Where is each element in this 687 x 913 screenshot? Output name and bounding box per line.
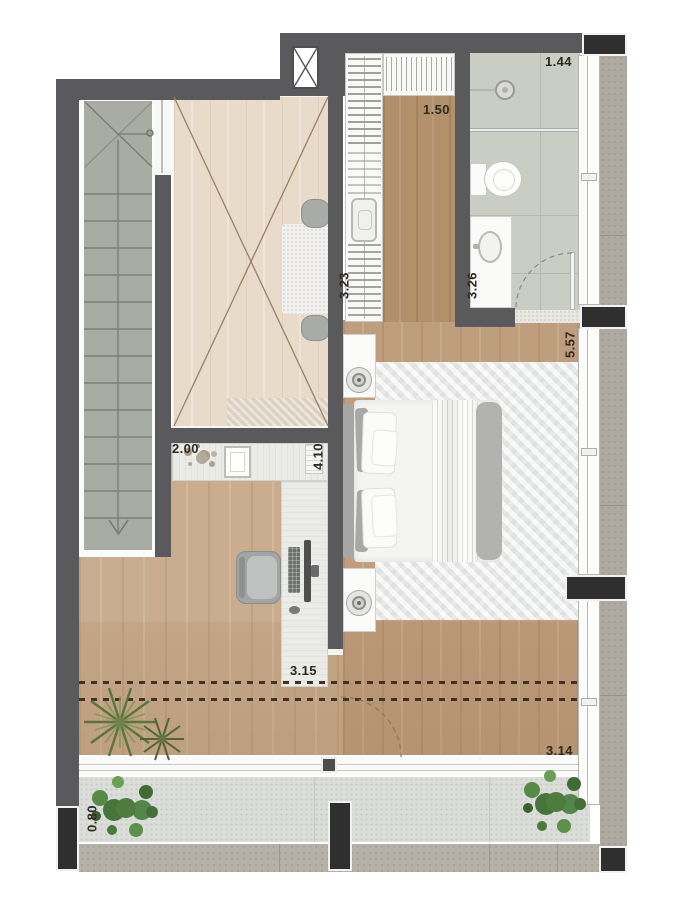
shower-arm [470, 89, 497, 91]
dim-closet-length: 3.23 [336, 266, 352, 306]
dim-balcony-depth: 0.80 [84, 792, 100, 846]
window-mullion [581, 173, 597, 181]
ledge-seam-b [489, 844, 490, 872]
wall-middle-vertical [328, 95, 343, 649]
floor-plan: 1.44 1.50 3.23 3.26 5.57 2.00 4.10 3.15 … [0, 0, 687, 913]
desk-picture-frame [224, 446, 251, 478]
window-bathroom [578, 55, 600, 305]
hanging-clothes-icon [386, 57, 452, 91]
monitor-stand [311, 565, 319, 577]
table-lamp-icon-bottom [346, 590, 372, 616]
ledge-seam-a [279, 844, 280, 872]
void-chair-below-1 [301, 199, 330, 228]
folded-items-inner [358, 210, 372, 230]
window-terrace [578, 598, 600, 805]
void-chair-below-2 [301, 315, 330, 341]
monitor-icon [304, 540, 311, 602]
clothes-rail-3 [348, 244, 381, 319]
dim-bedroom-length: 5.57 [562, 324, 578, 366]
lamp-dot [357, 378, 361, 382]
mouse-icon [289, 606, 300, 614]
bed-foot-roll [476, 402, 502, 560]
column-bottom-center [328, 801, 352, 871]
office-chair [236, 551, 281, 604]
wall-end-cap [328, 649, 343, 655]
balcony-plant-left [116, 798, 136, 818]
sink-icon [478, 231, 502, 263]
cushion-2 [371, 494, 398, 537]
keyboard-icon [288, 547, 300, 593]
window-bedroom [578, 328, 600, 575]
stair-glass-rail [155, 95, 171, 175]
wardrobe-top [383, 53, 455, 96]
ledge-right-seam-1 [600, 235, 627, 236]
table-lamp-icon-top [346, 367, 372, 393]
balcony-seam-2 [489, 777, 490, 842]
shower-head-dot [502, 87, 508, 93]
column-bottom-right [599, 846, 627, 873]
wall-stair-right [155, 175, 171, 557]
shaft-box [292, 46, 319, 89]
tile-joint-v [540, 53, 541, 320]
wall-top-left [56, 79, 280, 100]
balcony-plant-right [546, 792, 566, 812]
stair-enclosure [79, 95, 156, 557]
stair-step-lines [84, 168, 152, 543]
dim-closet-depth: 1.50 [423, 102, 450, 117]
toilet-bowl-inner [493, 169, 515, 191]
column-mid-right-2 [565, 575, 627, 601]
dim-desk-nook-width: 2.00 [172, 441, 199, 456]
clothes-rail-1 [348, 58, 381, 144]
shower-partition [470, 128, 580, 132]
dim-terrace-width: 3.14 [546, 743, 573, 758]
column-mid-right-1 [580, 305, 627, 329]
folded-items-basket [351, 198, 377, 242]
stair-glass-rail-line [161, 97, 163, 173]
bed-throw-blanket [432, 400, 478, 562]
ledge-right [600, 55, 627, 846]
window-mullion [581, 698, 597, 706]
column-top-right [582, 33, 627, 56]
balcony-seam-1 [314, 777, 315, 842]
chair-seat [247, 556, 277, 599]
wall-bath-south [455, 308, 515, 327]
shower-head-icon [495, 80, 515, 100]
ledge-seam-c [557, 844, 558, 872]
palm-center-1 [115, 717, 125, 727]
palm-plants-deck [70, 684, 185, 766]
dim-bathroom-width: 1.44 [545, 54, 572, 69]
bed-headboard [343, 404, 354, 558]
bathroom [470, 53, 580, 323]
double-height-void [172, 95, 330, 428]
column-bottom-left [56, 806, 79, 871]
lamp-dot [357, 601, 361, 605]
window-mullion [581, 448, 597, 456]
void-herringbone-rug [227, 398, 328, 426]
void-rug-below [282, 224, 330, 314]
toilet-bowl [484, 161, 522, 197]
frame-inner [230, 452, 245, 472]
clothes-rail-2 [348, 152, 381, 196]
ledge-right-seam-3 [600, 695, 627, 696]
palm-center-2 [158, 735, 166, 743]
ledge-right-seam-2 [600, 505, 627, 506]
bathroom-door-leaf [570, 252, 575, 310]
dim-office-width: 3.15 [290, 663, 317, 678]
dim-desk-run-length: 4.10 [310, 439, 326, 475]
faucet-icon [473, 244, 479, 249]
chair-back [239, 557, 245, 598]
closet-corridor-floor [383, 96, 455, 322]
railing-post [321, 757, 337, 773]
cushion-1 [371, 429, 398, 467]
dim-bathroom-length: 3.26 [464, 266, 480, 306]
door-threshold [515, 310, 580, 323]
